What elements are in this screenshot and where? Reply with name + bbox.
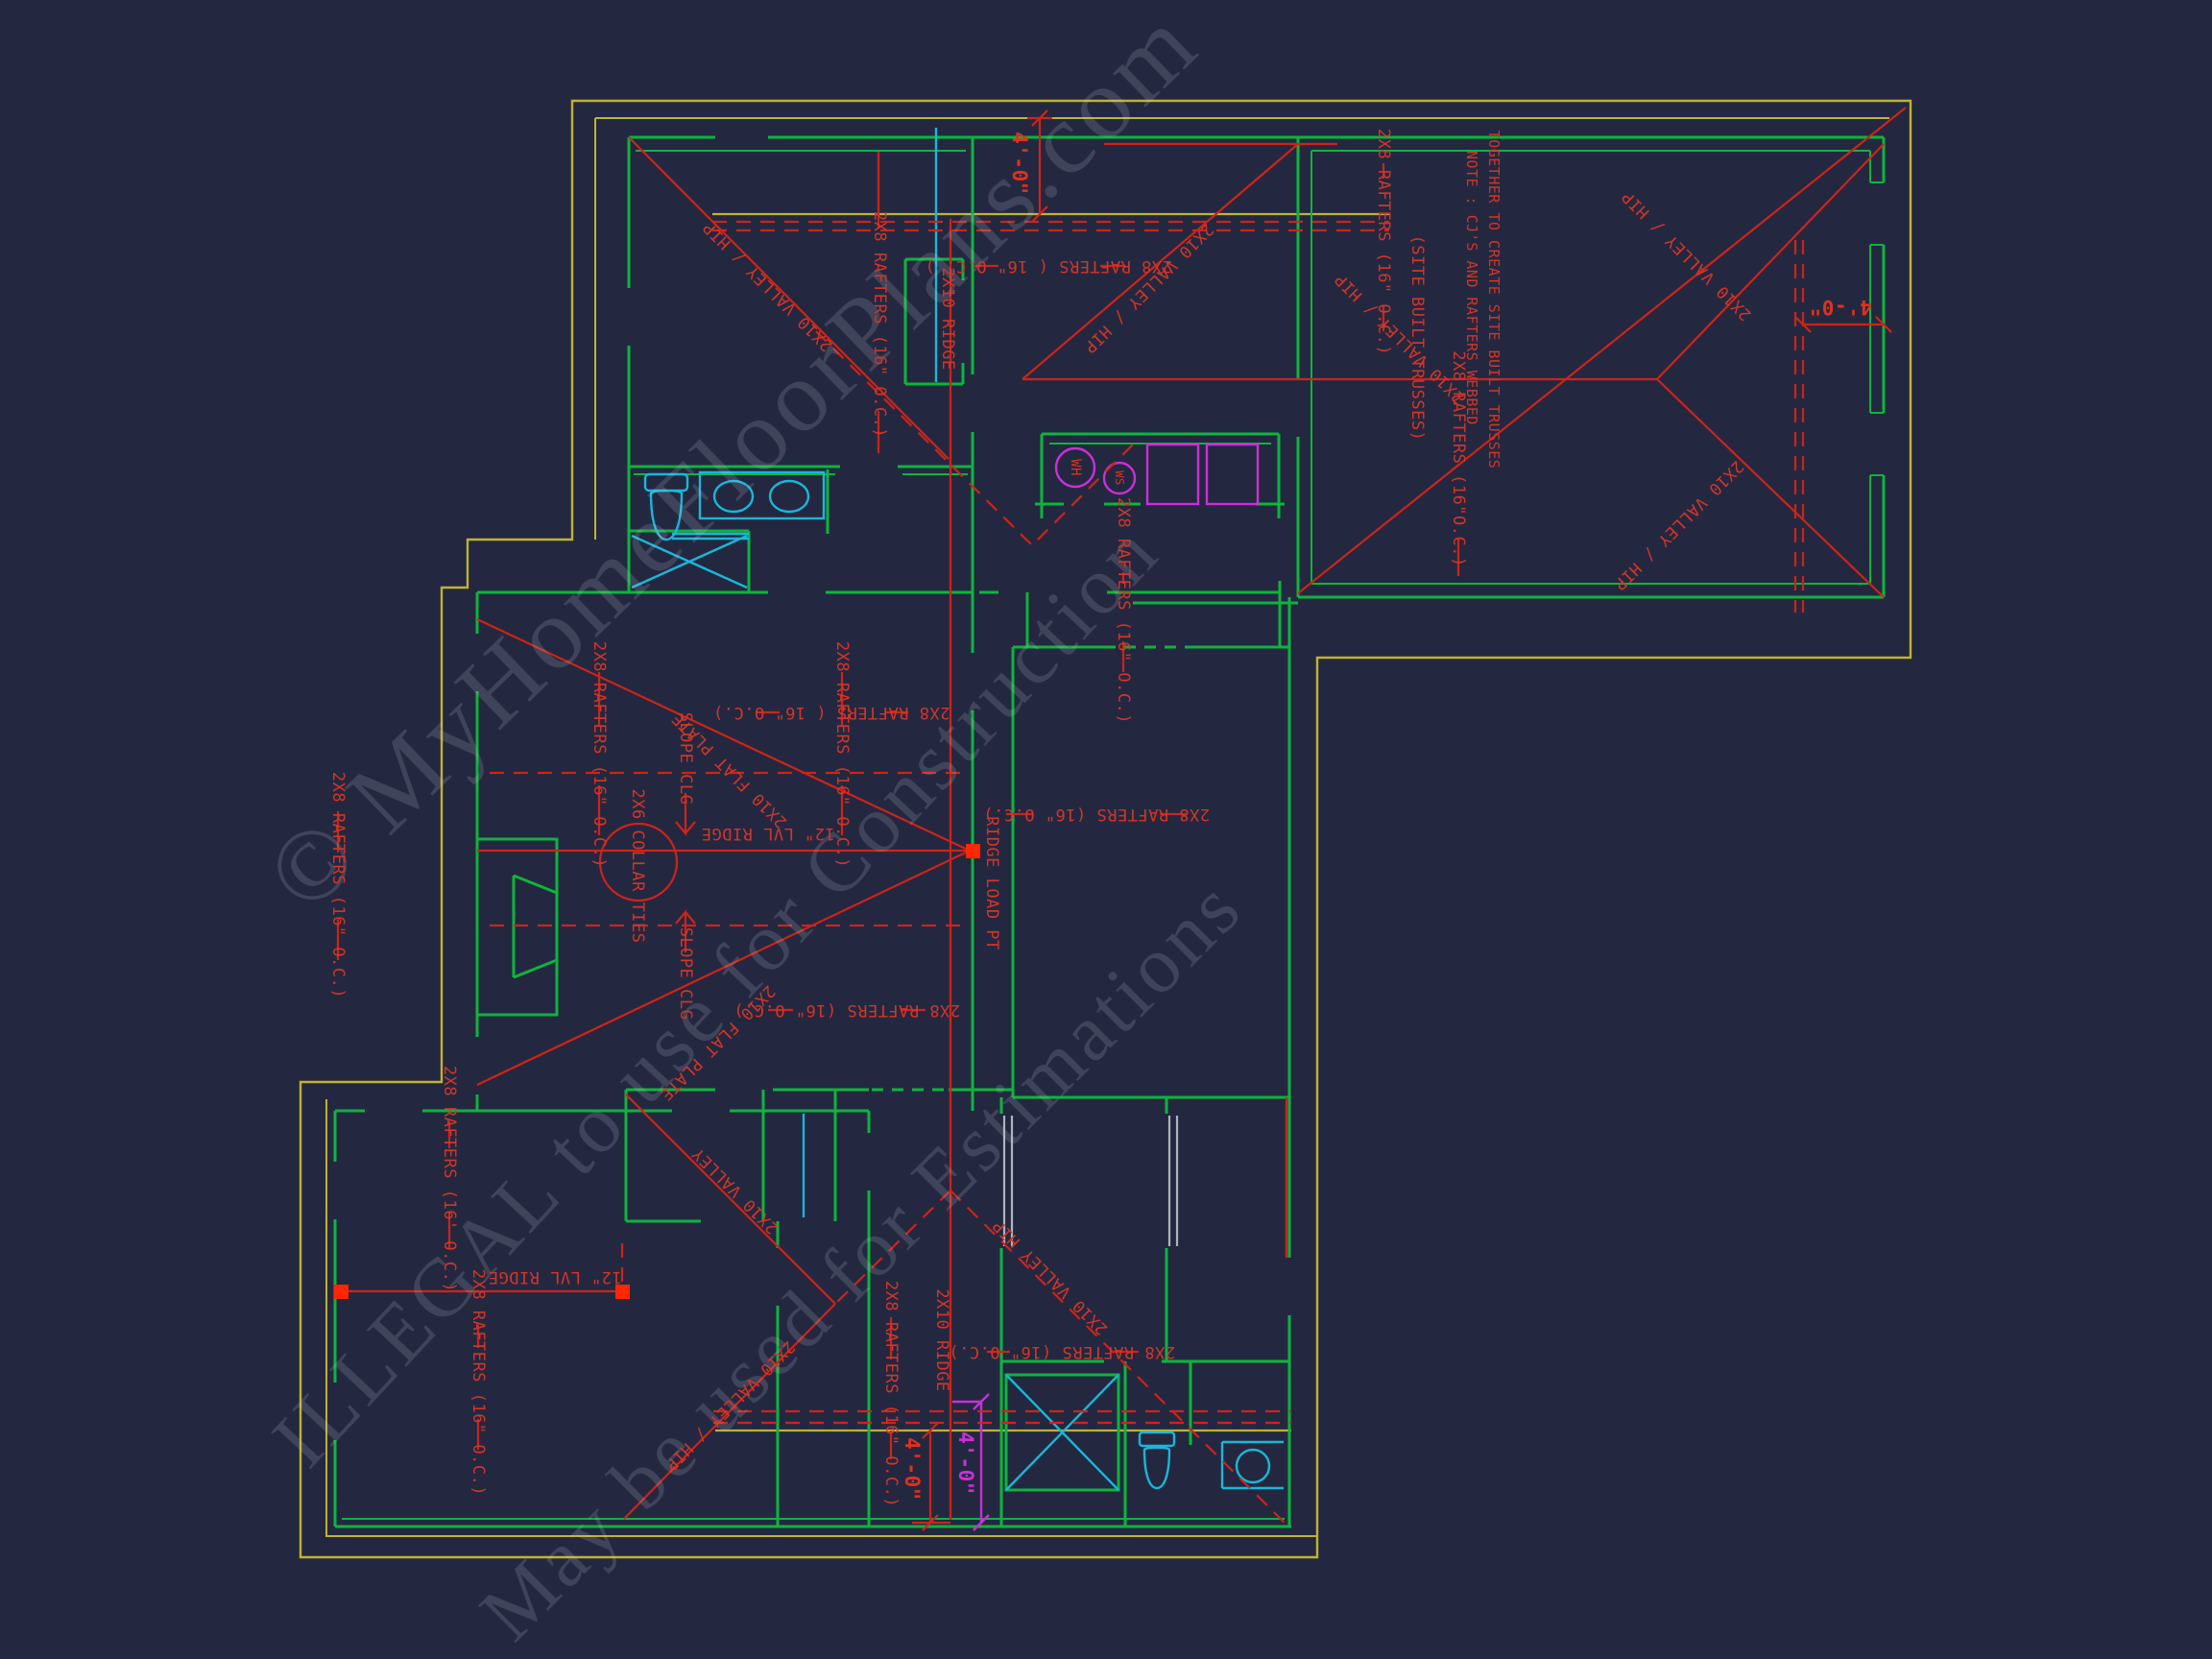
framing-label: 2X8 RAFTERS ( 16" O.C.) xyxy=(713,703,950,722)
door-leaf xyxy=(1169,1116,1177,1246)
framing-label: 2X8 RAFTERS (16" O.C.) xyxy=(1114,497,1133,724)
framing-label: 2X8 RAFTERS (16" O.C.) xyxy=(881,1281,901,1507)
framing-label: TOGETHER TO CREATE SITE BUILT TRUSSES xyxy=(1485,131,1503,469)
framing-label: 2X8 RAFTERS (16" O.C.) xyxy=(949,1342,1175,1361)
hvac-unit-icon xyxy=(1147,445,1198,504)
ridge-load-point xyxy=(334,1285,349,1299)
framing-label: 4'-0" xyxy=(1008,132,1031,195)
framing-label: 4'-0" xyxy=(901,1437,924,1501)
toilet-icon-2 xyxy=(1140,1432,1174,1488)
framing-label: 12" LVL RIDGE xyxy=(488,1267,622,1286)
framing-label: 2X8 RAFTERS (16" O.C.) xyxy=(589,641,609,868)
framing-label: 2X8 RAFTERS (16"O.C.) xyxy=(1449,350,1468,566)
wall-layer xyxy=(335,137,1884,1527)
framing-label: 2X8 RAFTERS (16" O.C.) xyxy=(328,772,348,998)
framing-label: WH xyxy=(1068,459,1083,476)
framing-label: 2X10 RIDGE xyxy=(932,1288,951,1391)
corner-sink-icon xyxy=(1222,1442,1284,1488)
ridge-load-point xyxy=(615,1285,630,1299)
framing-label: 2X8 RAFTERS (16" O.C.) xyxy=(870,211,889,438)
cad-roof-framing-plan: { "drawing": { "type": "roof-framing-flo… xyxy=(0,0,2212,1659)
framing-label: 2X8 RAFTERS (16" O.C.) xyxy=(469,1269,488,1496)
framing-label: 2X6 COLLAR TIES xyxy=(628,788,647,943)
framing-label: WS xyxy=(1113,470,1126,485)
framing-label: 2X8 RAFTERS (16" O.C.) xyxy=(1374,129,1393,355)
framing-label: 2X8 RAFTERS (16" O.C.) xyxy=(733,1000,960,1020)
framing-label: SLOPE CLG xyxy=(676,927,695,1021)
framing-label: RIDGE LOAD PT xyxy=(982,816,1001,950)
framing-label: 4'-0" xyxy=(1809,296,1872,319)
hvac-unit-icon xyxy=(1207,445,1258,504)
framing-label: 2X8 RAFTERS (16" O.C.) xyxy=(983,805,1210,824)
shower-icon xyxy=(1006,1375,1118,1490)
framing-label: 2X8 RAFTERS (16" O.C.) xyxy=(832,641,852,868)
framing-label: 2X8 RAFTERS ( 16" O.C. ) xyxy=(925,256,1172,276)
framing-label: 4'-0" xyxy=(954,1431,977,1495)
framing-label: 2X8 RAFTERS (16' O.C.) xyxy=(440,1066,459,1292)
framing-label: (SITE BUILT TRUSSES) xyxy=(1407,235,1427,442)
framing-label: 12" LVL RIDGE xyxy=(701,824,835,843)
ridge-load-point xyxy=(966,844,980,858)
framing-label: 2X10 RIDGE xyxy=(938,267,957,370)
